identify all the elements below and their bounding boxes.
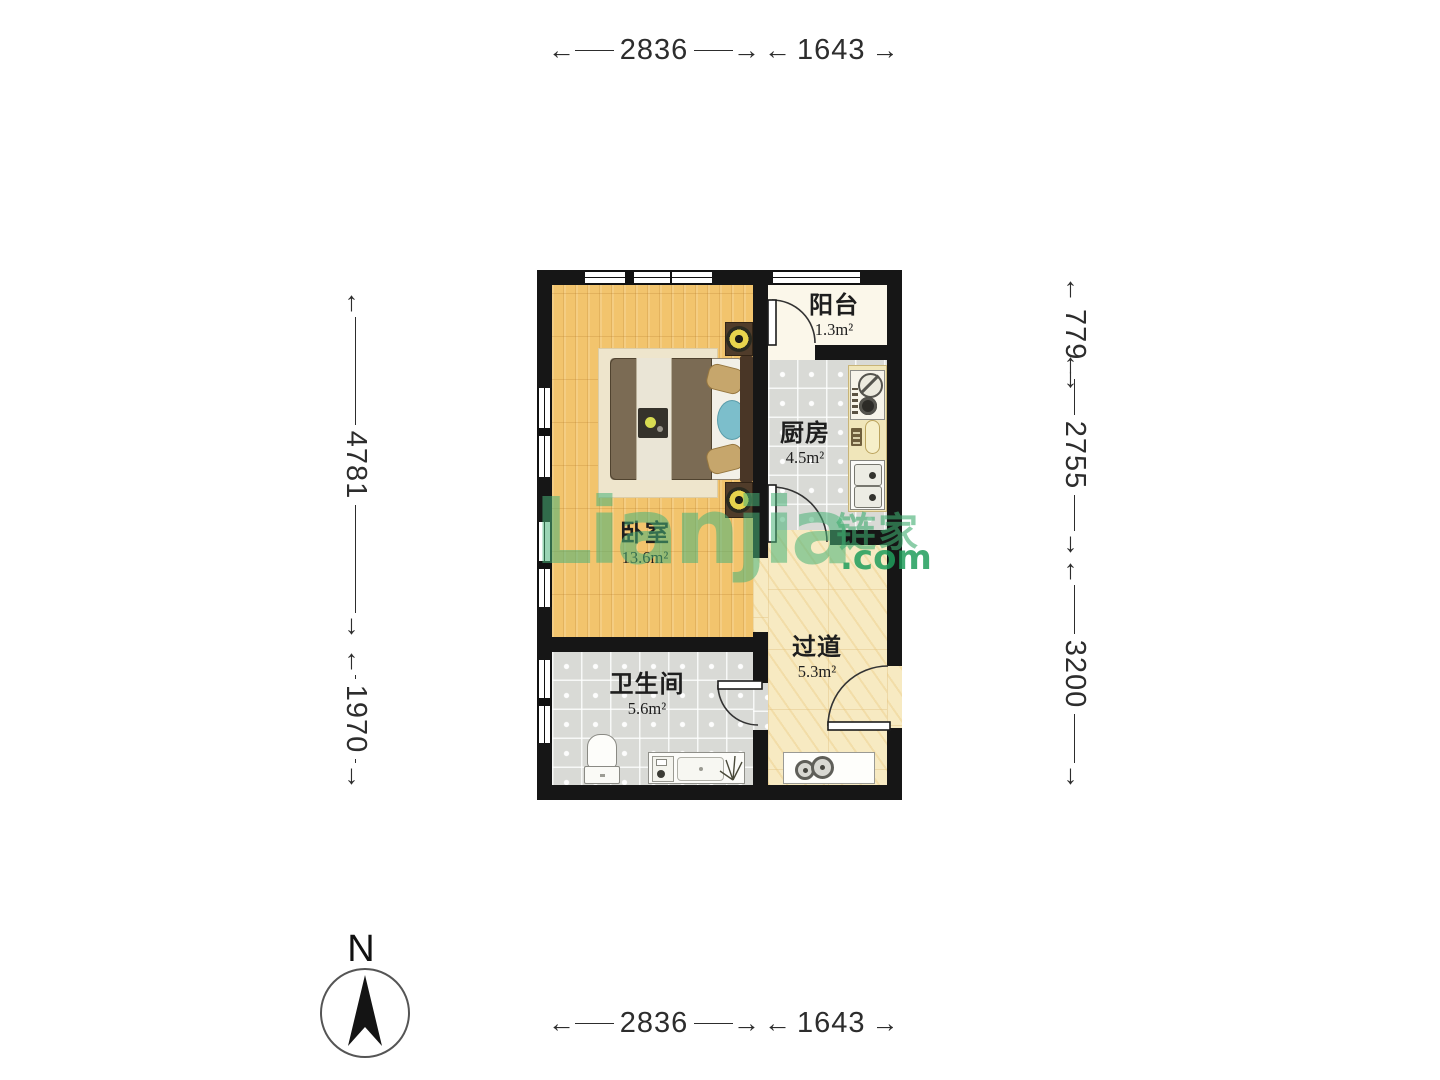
- dim-value: 1643: [791, 36, 872, 65]
- dim-left-lower: ← 1970 →: [339, 648, 373, 790]
- dim-right-middle: ← 2755 →: [1058, 352, 1092, 558]
- lamp-bottom-icon: [726, 487, 752, 513]
- room-label-hallway: 过道 5.3m²: [762, 636, 872, 681]
- wall-right-lower: [887, 728, 902, 800]
- arrow-up-icon: ←: [1062, 558, 1089, 585]
- dim-value: 4781: [342, 425, 371, 506]
- wall-right-upper: [887, 270, 902, 666]
- bed-laptop: [638, 408, 668, 438]
- window-pane-divider: [670, 272, 672, 283]
- room-area: 5.3m²: [762, 664, 872, 681]
- room-label-bedroom: 卧室 13.6m²: [590, 522, 700, 567]
- arrow-up-icon: ←: [343, 648, 370, 675]
- room-label-balcony: 阳台 1.3m²: [779, 294, 889, 339]
- arrow-down-icon: →: [1062, 531, 1089, 558]
- arrow-right-icon: →: [872, 37, 899, 64]
- compass-north-label: N: [336, 928, 386, 971]
- room-area: 1.3m²: [779, 322, 889, 339]
- wall-bathroom-east-lower: [753, 730, 768, 785]
- arrow-up-icon: ←: [1062, 352, 1089, 379]
- window-mullion: [537, 698, 552, 706]
- arrow-down-icon: →: [343, 613, 370, 640]
- room-label-kitchen: 厨房 4.5m²: [750, 422, 860, 467]
- dim-top-left: ← 2836 →: [548, 33, 760, 67]
- room-label-bathroom: 卫生间 5.6m²: [592, 673, 702, 718]
- room-name: 过道: [762, 636, 872, 661]
- room-name: 卫生间: [592, 673, 702, 698]
- lamp-top-icon: [726, 326, 752, 352]
- arrow-right-icon: →: [872, 1010, 899, 1037]
- compass-needle-icon: [322, 970, 408, 1056]
- room-area: 13.6m²: [590, 550, 700, 567]
- vanity-cabinet: [652, 756, 674, 782]
- room-name: 厨房: [750, 422, 860, 447]
- room-name: 阳台: [779, 294, 889, 319]
- dim-top-right: ← 1643 →: [764, 33, 890, 67]
- dim-bottom-left: ← 2836 →: [548, 1006, 760, 1040]
- arrow-down-icon: →: [343, 763, 370, 790]
- compass-icon: [320, 968, 410, 1058]
- dim-right-upper: ← 779 →: [1058, 276, 1092, 352]
- stove-dots: [852, 388, 858, 414]
- room-area: 4.5m²: [750, 450, 860, 467]
- dim-value: 1643: [791, 1009, 872, 1038]
- arrow-down-icon: →: [1062, 763, 1089, 790]
- arrow-left-icon: ←: [548, 1010, 575, 1037]
- dim-value: 2836: [614, 36, 695, 65]
- canvas: { "watermark": { "brand_latin": "Lianjia…: [0, 0, 1440, 1080]
- bathroom-doorway-floor: [753, 683, 768, 730]
- room-area: 5.6m²: [592, 701, 702, 718]
- room-name: 卧室: [590, 522, 700, 547]
- balcony-window-top: [773, 270, 860, 285]
- arrow-left-icon: ←: [764, 1010, 791, 1037]
- wall-bathroom-north: [552, 637, 768, 652]
- arrow-left-icon: ←: [764, 37, 791, 64]
- dim-right-lower: ← 3200 →: [1058, 558, 1092, 790]
- toilet-tank: [584, 766, 620, 784]
- window-mullion: [537, 561, 552, 569]
- dim-value: 3200: [1061, 634, 1090, 715]
- bedroom-doorway-floor: [753, 558, 768, 632]
- wall-balcony-south: [815, 345, 887, 360]
- arrow-right-icon: →: [733, 37, 760, 64]
- dim-value: 2755: [1061, 415, 1090, 496]
- dim-bottom-right: ← 1643 →: [764, 1006, 890, 1040]
- arrow-left-icon: ←: [548, 37, 575, 64]
- burner-bottom-icon: [859, 397, 877, 415]
- arrow-up-icon: ←: [343, 290, 370, 317]
- wall-bottom: [537, 785, 902, 800]
- burner-top-icon: [858, 373, 883, 398]
- dim-value: 2836: [614, 1009, 695, 1038]
- floorplan: 阳台 1.3m² 厨房 4.5m² 卧室 13.6m² 卫生间 5.6m² 过道…: [537, 270, 902, 800]
- toilet-bowl: [587, 734, 617, 768]
- dim-left-upper: ← 4781 →: [339, 290, 373, 640]
- sink-basin-top: [854, 464, 882, 486]
- kitchen-rack: [865, 420, 880, 454]
- vanity-basin: [677, 757, 724, 781]
- dim-value: 1970: [342, 679, 371, 760]
- entry-doorway-floor: [887, 666, 902, 728]
- window-mullion: [625, 270, 634, 285]
- wall-kitchen-south: [830, 530, 887, 545]
- cabinet-knob-right-icon: [811, 756, 834, 779]
- arrow-right-icon: →: [733, 1010, 760, 1037]
- bedroom-window-top: [585, 270, 712, 285]
- window-mullion: [537, 428, 552, 436]
- sink-basin-bottom: [854, 486, 882, 508]
- arrow-up-icon: ←: [1062, 276, 1089, 303]
